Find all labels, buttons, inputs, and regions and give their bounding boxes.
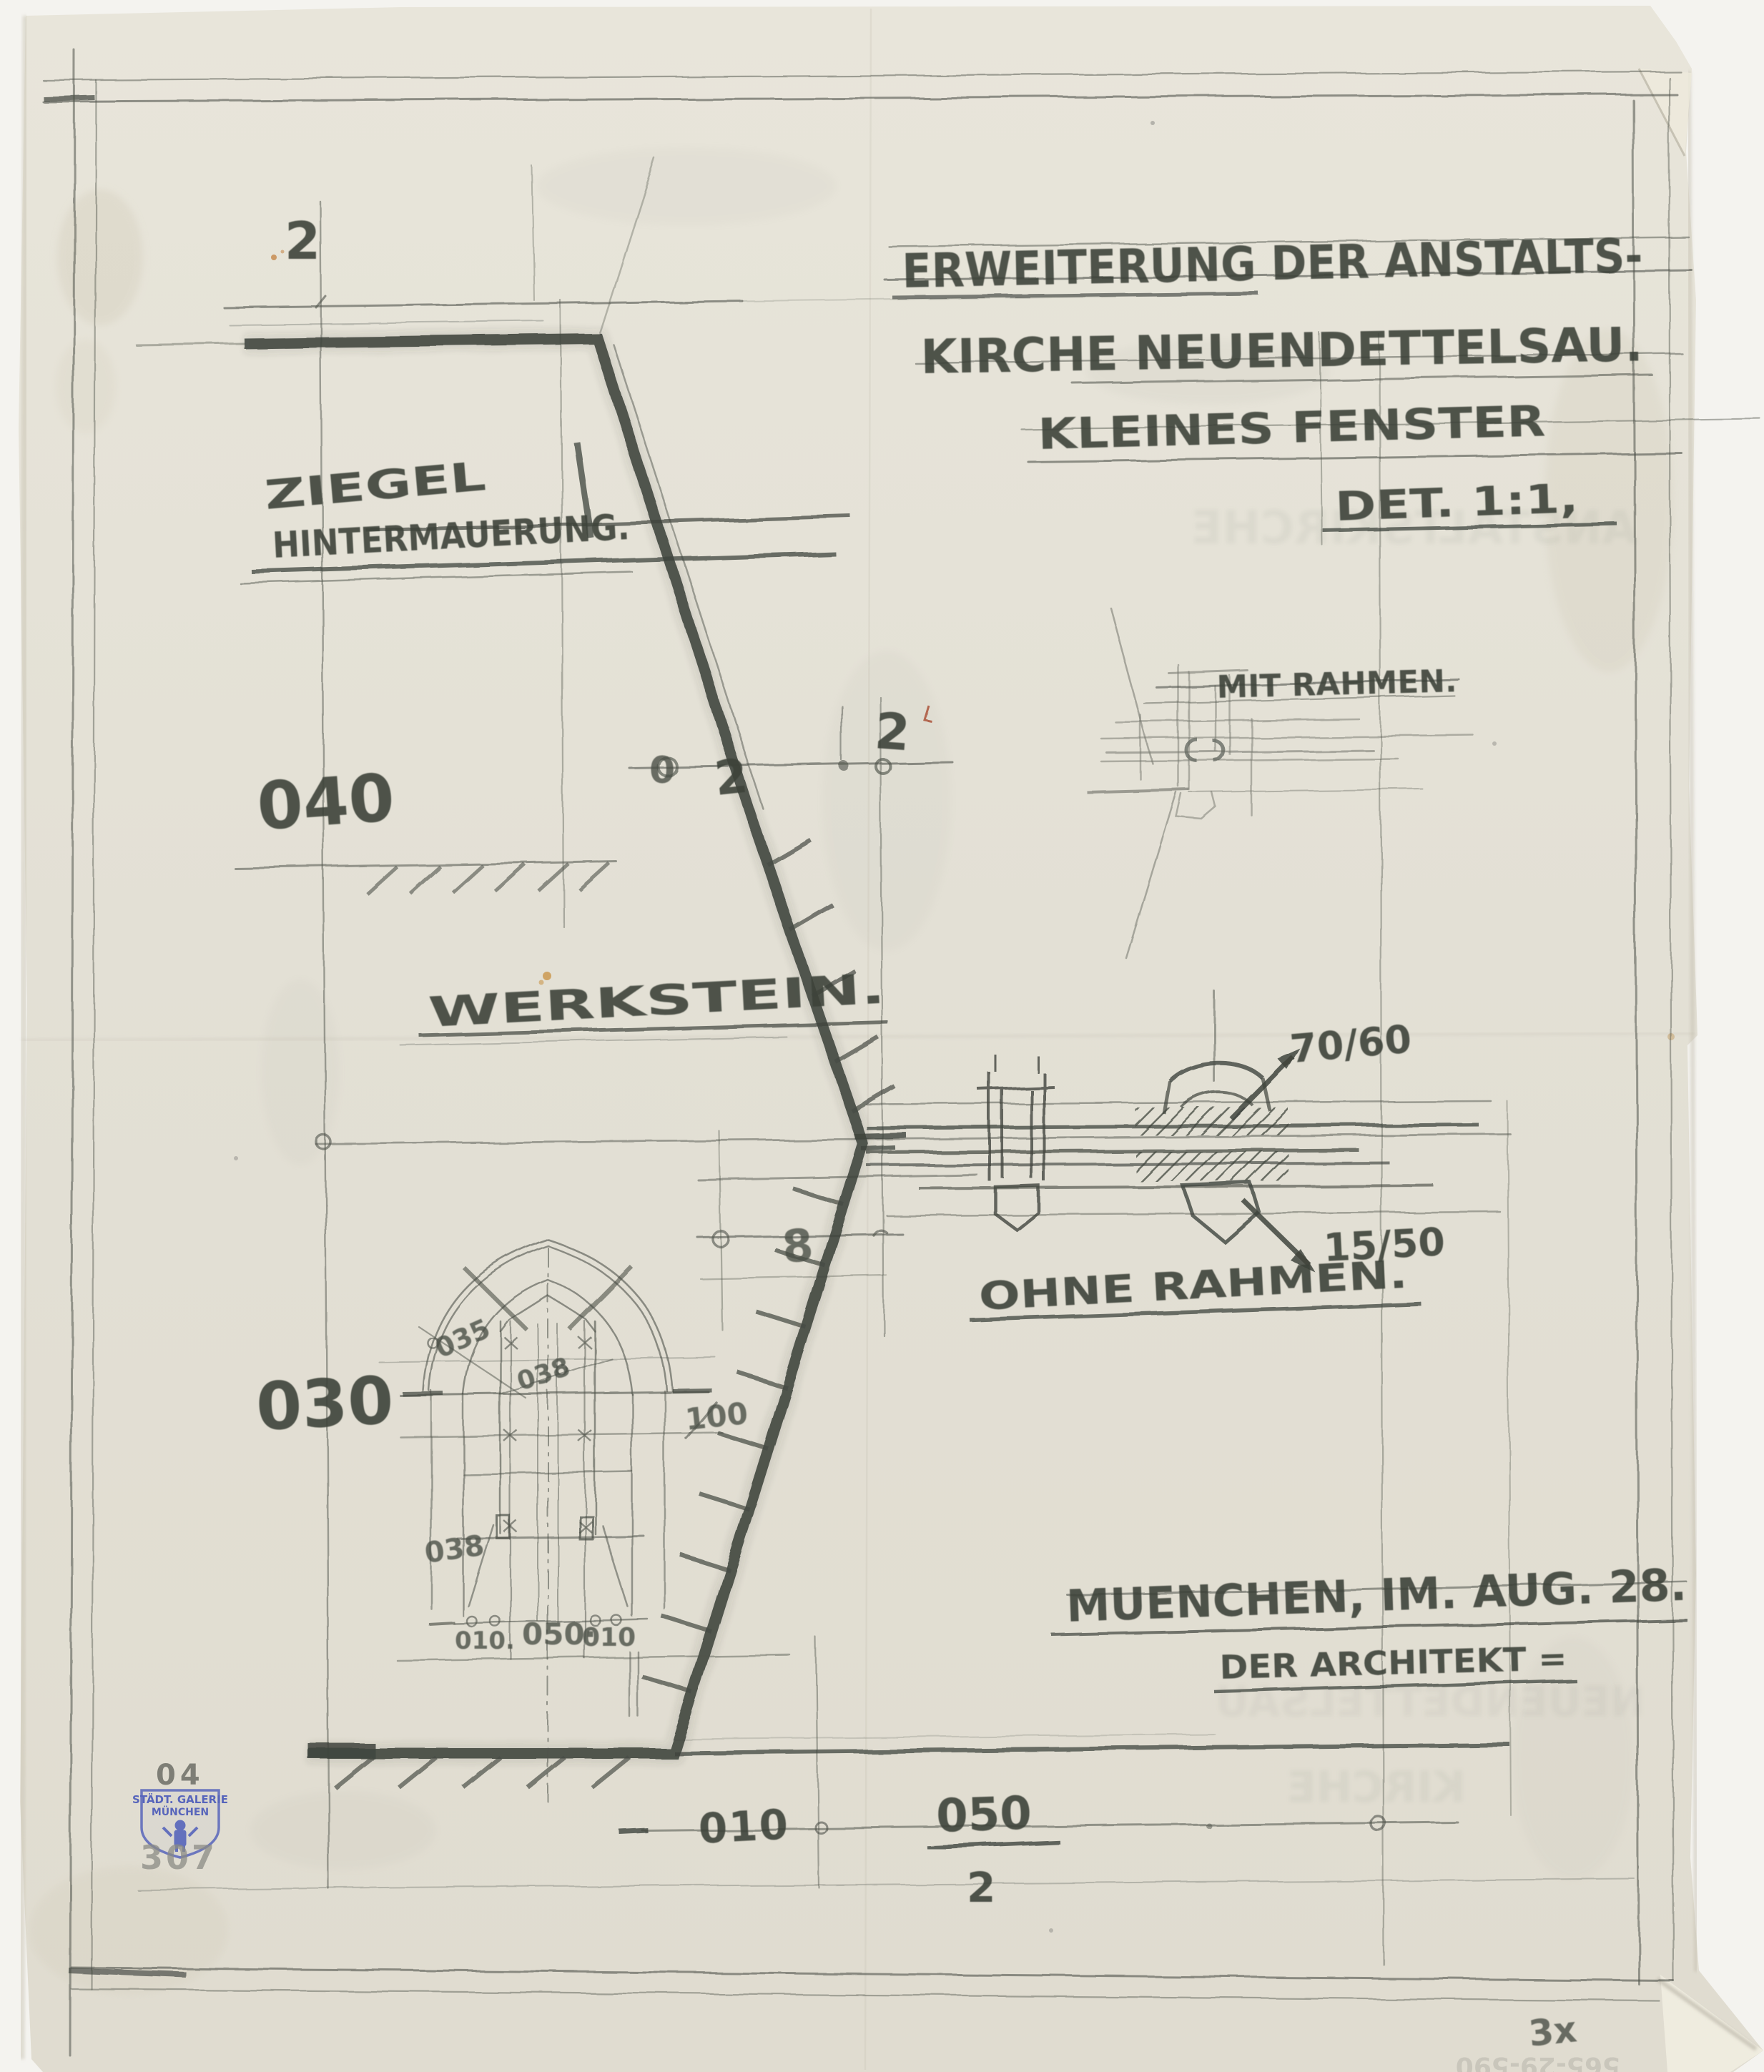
dim-bottom-left: 010 — [697, 1800, 790, 1853]
dim-bottom-right-denominator: 2 — [967, 1863, 995, 1912]
dim-mid-left-two: 2 — [712, 749, 751, 806]
stamp-number-bottom: 307 — [140, 1838, 217, 1877]
subtitle-line-2: DET. 1:1, — [1334, 475, 1579, 531]
dim-mid-left-zero: 0 — [649, 749, 675, 792]
dim-mid-right-two: 2 — [873, 701, 912, 762]
orange-stain — [543, 972, 551, 980]
dim-beam-lower: 15/50 — [1322, 1219, 1446, 1271]
dim-bottom-right-numerator: 050 — [935, 1787, 1033, 1843]
ghost-text-lower-2: KIRCHE — [1287, 1762, 1466, 1812]
hatched-band-upper — [1135, 1107, 1288, 1135]
win-dim-bottom-right: 010 — [582, 1623, 636, 1652]
label-mit-rahmen: MIT RAHMEN. — [1216, 663, 1457, 706]
faint-inventory-number: 565-29-590 — [1456, 2051, 1620, 2072]
win-dim-height: 100 — [684, 1396, 749, 1437]
stamp-gallery-line-1: STÄDT. GALERIE — [132, 1792, 228, 1806]
dim-left-upper: 040 — [255, 759, 397, 845]
drawing-canvas: ANSTALTSKIRCHE NEUENDETTELSAU KIRCHE — [0, 0, 1764, 2072]
dim-sill-eight: 8 — [780, 1218, 815, 1273]
win-dim-bottom-left: 010. — [455, 1627, 515, 1655]
corner-note: 3x — [1527, 2008, 1579, 2055]
orange-speck — [271, 255, 277, 260]
hatched-band-lower — [1135, 1151, 1288, 1181]
dim-left-lower: 030 — [255, 1362, 395, 1446]
stamp-number-top: 04 — [156, 1759, 205, 1792]
paper-left-edge-shadow — [21, 16, 26, 2059]
scanned-drawing-sheet: ANSTALTSKIRCHE NEUENDETTELSAU KIRCHE — [0, 0, 1764, 2072]
dim-top-width: 2 — [285, 211, 320, 271]
stamp-gallery-line-2: MÜNCHEN — [152, 1805, 209, 1818]
